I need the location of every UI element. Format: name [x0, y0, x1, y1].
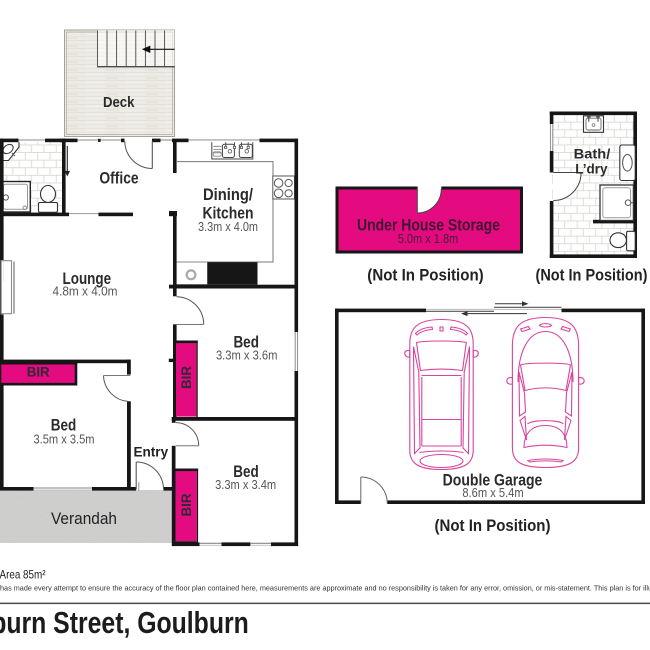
- svg-text:Entry: Entry: [133, 444, 168, 460]
- svg-text:Area 85m²: Area 85m²: [0, 568, 46, 582]
- svg-text:3.3m x 3.6m: 3.3m x 3.6m: [216, 348, 278, 363]
- svg-text:3.3m x 4.0m: 3.3m x 4.0m: [198, 219, 258, 234]
- svg-text:L’dry: L’dry: [575, 161, 607, 177]
- svg-text:4.8m x 4.0m: 4.8m x 4.0m: [53, 284, 118, 299]
- svg-text:3.5m x 3.5m: 3.5m x 3.5m: [34, 432, 95, 447]
- svg-text:burn Street, Goulburn: burn Street, Goulburn: [0, 605, 249, 639]
- svg-text:Office: Office: [99, 170, 138, 188]
- svg-text:Dining/: Dining/: [203, 186, 253, 204]
- svg-text:3.3m x 3.4m: 3.3m x 3.4m: [215, 477, 276, 492]
- svg-text:(Not In Position): (Not In Position): [536, 267, 648, 285]
- svg-text:5.0m x 1.8m: 5.0m x 1.8m: [398, 231, 459, 246]
- svg-text:Deck: Deck: [103, 94, 135, 111]
- svg-text:(Not In Position): (Not In Position): [435, 517, 551, 535]
- svg-text:BIR: BIR: [27, 365, 50, 380]
- svg-text:Bath/: Bath/: [574, 145, 611, 161]
- svg-text:8.6m x 5.4m: 8.6m x 5.4m: [462, 485, 523, 500]
- svg-text:BIR: BIR: [179, 366, 194, 389]
- svg-text:has made every attempt to ensu: has made every attempt to ensure the acc…: [0, 584, 650, 593]
- svg-text:Verandah: Verandah: [51, 510, 117, 528]
- svg-text:BIR: BIR: [179, 493, 194, 516]
- svg-text:(Not In Position): (Not In Position): [367, 267, 483, 285]
